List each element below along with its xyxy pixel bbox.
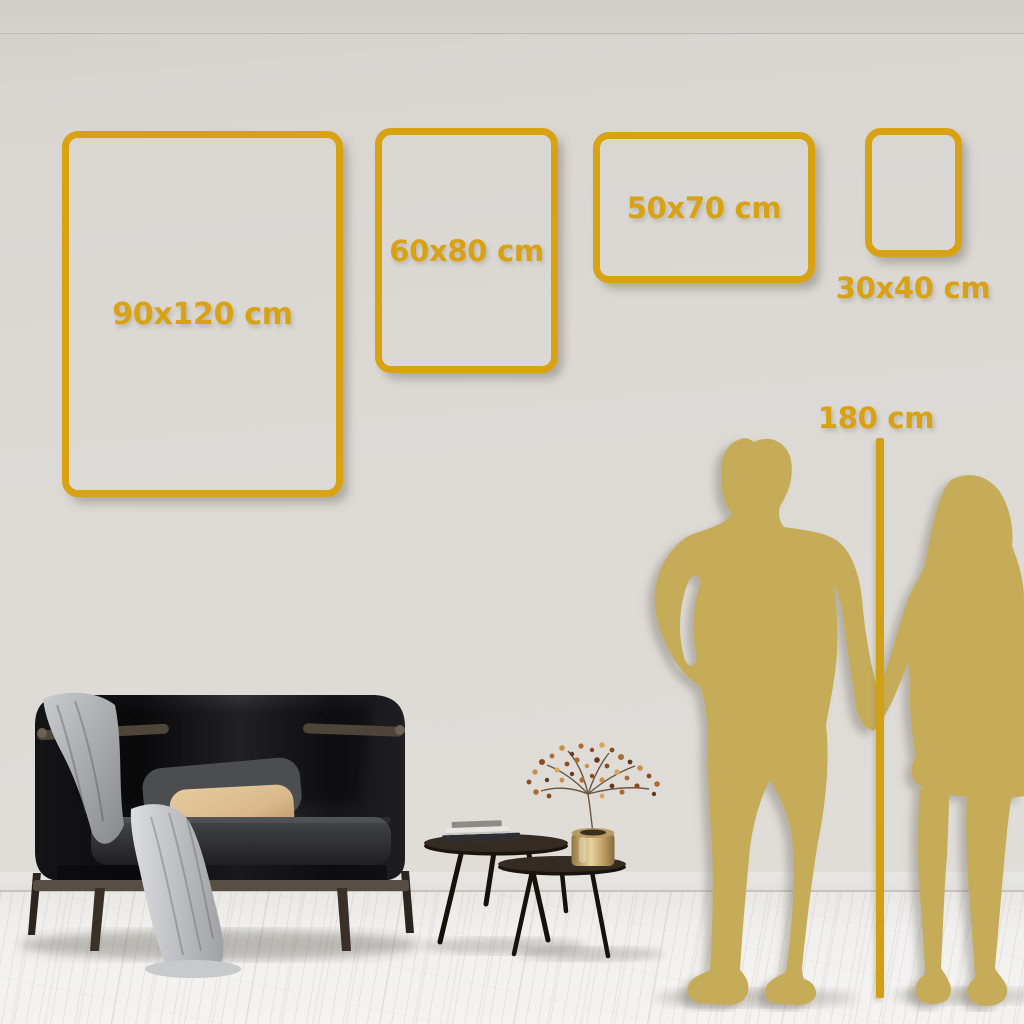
armrest-knob (37, 728, 47, 738)
size-label-60x80: 60x80 cm (389, 234, 544, 268)
book-stack (442, 820, 521, 843)
height-label: 180 cm (801, 401, 951, 435)
size-frame-30x40 (865, 128, 962, 257)
size-guide-scene: 90x120 cm 60x80 cm 50x70 cm 30x40 cm 180… (0, 0, 1024, 1024)
woman-silhouette (868, 475, 1024, 798)
man-silhouette (655, 438, 882, 1005)
size-label-90x120: 90x120 cm (112, 297, 293, 332)
armrest-knob (395, 725, 405, 735)
blanket-pool (145, 960, 241, 978)
ceiling-edge (0, 0, 1024, 34)
size-label-30x40: 30x40 cm (828, 271, 998, 305)
size-frame-50x70: 50x70 cm (593, 132, 815, 283)
seat-under-shadow (57, 865, 387, 880)
woman-left-leg (915, 788, 951, 1004)
size-label-50x70: 50x70 cm (627, 191, 782, 225)
height-reference-line (876, 438, 884, 998)
size-frame-60x80: 60x80 cm (375, 128, 558, 373)
sofa-illustration (5, 683, 435, 983)
couple-floor-shadow (655, 989, 855, 1007)
brass-vase (572, 828, 615, 866)
couple-silhouettes (615, 428, 1024, 1012)
woman-right-leg (966, 790, 1012, 1006)
sofa-wood-rail (33, 880, 409, 891)
size-frame-90x120: 90x120 cm (62, 131, 343, 497)
